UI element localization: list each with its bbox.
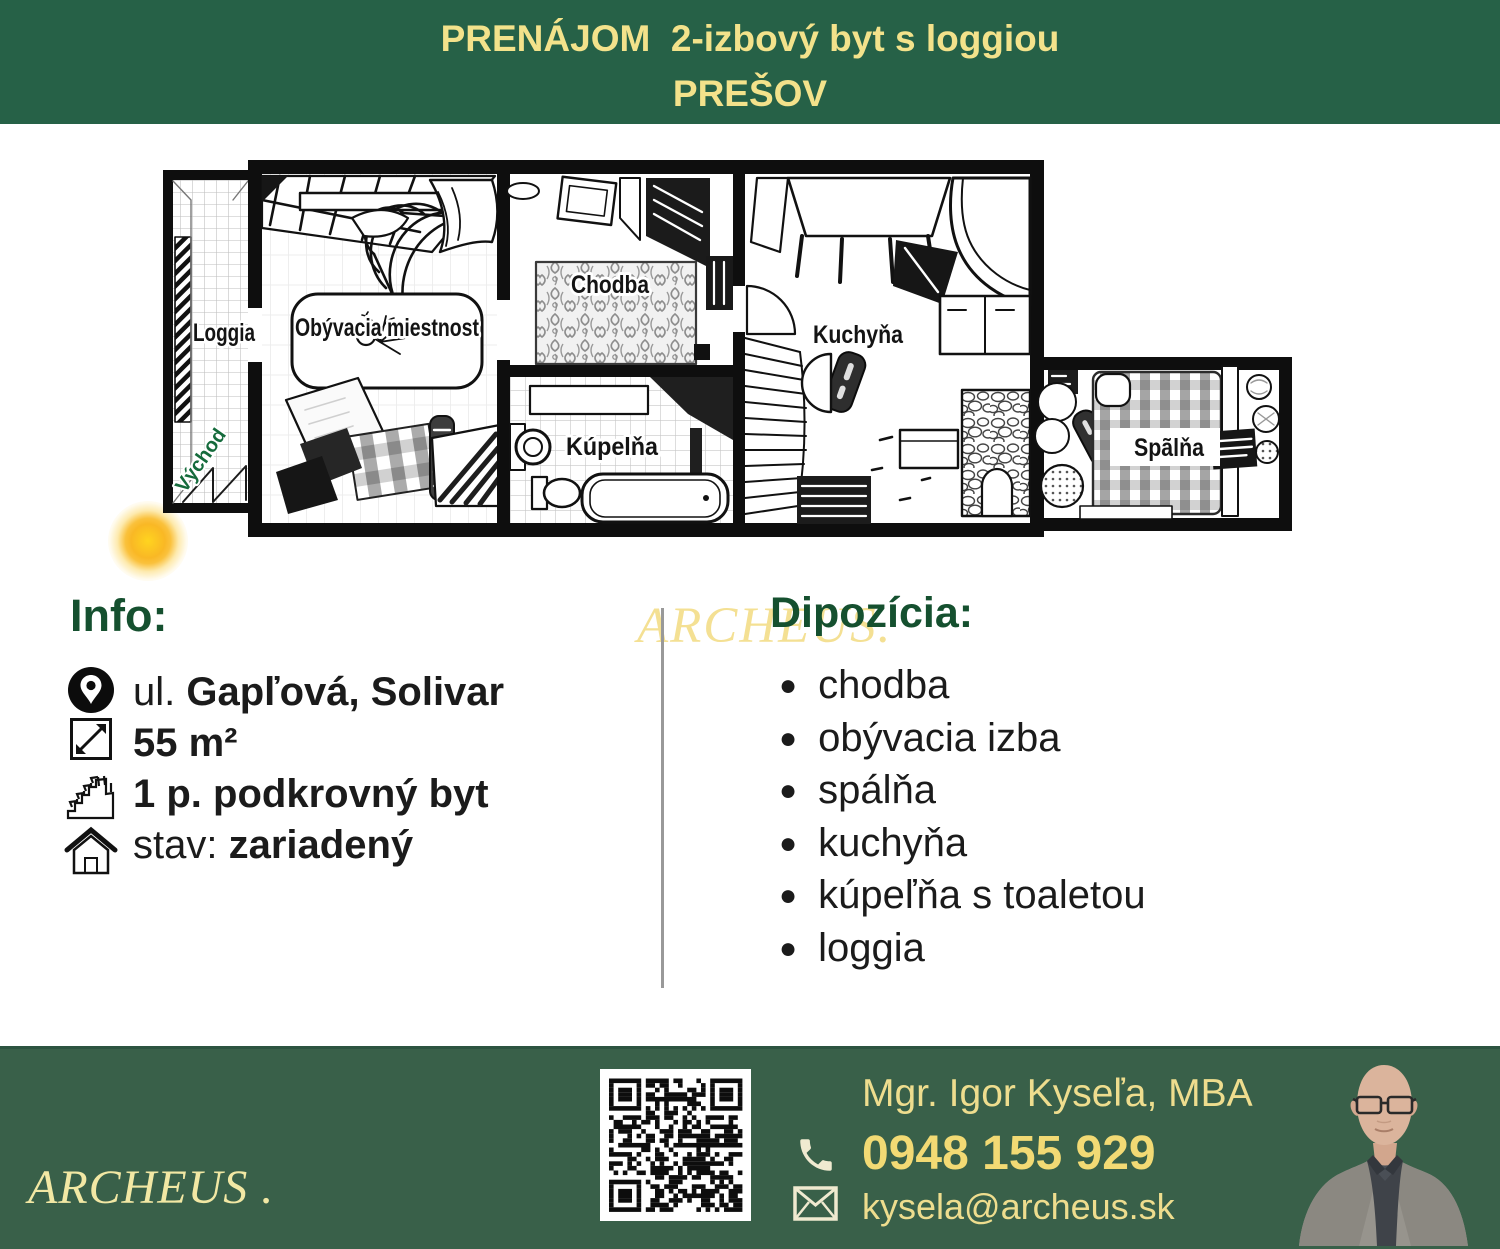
svg-text:Kuchyňa: Kuchyňa: [813, 321, 904, 349]
svg-text:Chodba: Chodba: [571, 271, 650, 299]
svg-text:Spãlňa: Spãlňa: [1134, 434, 1205, 462]
svg-text:Kúpelňa: Kúpelňa: [566, 433, 659, 461]
svg-text:Obývacia miestnost: Obývacia miestnost: [295, 314, 480, 342]
svg-text:Loggia: Loggia: [193, 319, 256, 347]
